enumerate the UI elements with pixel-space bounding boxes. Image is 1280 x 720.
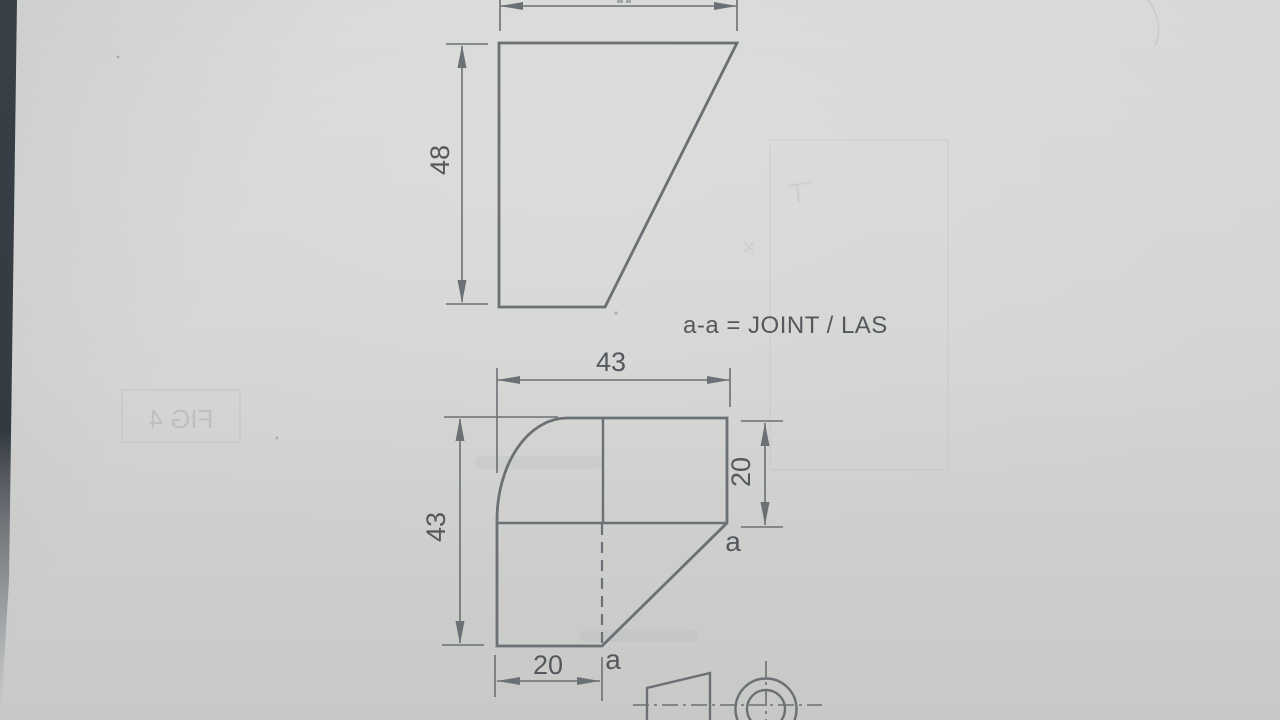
- dimension-value-20-right: 20: [726, 457, 756, 487]
- front-view: 48: [425, 0, 737, 307]
- lower-height-dimension: 43: [421, 417, 558, 645]
- dimension-arrow: [456, 418, 465, 441]
- paper-sheet: FIG 4: [0, 0, 1280, 720]
- technical-drawing: FIG 4: [0, 0, 1280, 720]
- bleed-through-artifacts: FIG 4: [117, 0, 1159, 642]
- ghost-curve: [1148, 0, 1159, 46]
- dimension-value-43-left: 43: [421, 512, 451, 542]
- dimension-arrow: [497, 376, 520, 384]
- ghost-smudge: [580, 629, 698, 642]
- section-label-a-lower: a: [605, 644, 621, 675]
- ghost-mark: [788, 182, 812, 202]
- cropped-dim-text-remnant: [626, 0, 631, 3]
- dimension-value-20-bottom: 20: [533, 650, 563, 680]
- dimension-arrow: [500, 2, 523, 10]
- front-view-outline: [499, 43, 737, 307]
- joint-note-label: a-a = JOINT / LAS: [683, 312, 888, 339]
- dimension-arrow: [761, 502, 770, 525]
- dimension-arrow: [458, 280, 467, 303]
- page-edge-shadow: [0, 0, 17, 720]
- lower-side-dimension: 20: [726, 421, 783, 527]
- dust-speck: [276, 437, 279, 440]
- auxiliary-views: [633, 661, 822, 720]
- dimension-value-43-top: 43: [596, 347, 626, 377]
- dimension-arrow: [577, 677, 600, 685]
- dimension-arrow: [497, 677, 520, 685]
- section-label-a-upper: a: [725, 526, 741, 557]
- ghost-x-mark: [744, 242, 754, 252]
- dimension-arrow: [458, 45, 467, 68]
- front-width-dimension: [500, 0, 737, 31]
- cropped-dim-text-remnant: [617, 0, 623, 3]
- dimension-arrow: [761, 423, 770, 446]
- dimension-arrow: [707, 376, 730, 384]
- aux-side-view-outline: [647, 673, 710, 720]
- lower-view: 43 43 20: [421, 347, 783, 701]
- dimension-arrow: [714, 2, 737, 10]
- lower-bottom-dimension: 20: [495, 650, 602, 701]
- lower-width-dimension: 43: [497, 347, 730, 473]
- dimension-arrow: [456, 621, 465, 644]
- dust-speck: [117, 56, 120, 59]
- ghost-figure-label: FIG 4: [148, 404, 213, 434]
- lower-view-outline: [497, 418, 727, 646]
- dimension-value-48: 48: [425, 145, 455, 175]
- front-height-dimension: 48: [425, 44, 488, 304]
- dust-speck: [614, 311, 617, 314]
- ghost-smudge: [475, 456, 603, 469]
